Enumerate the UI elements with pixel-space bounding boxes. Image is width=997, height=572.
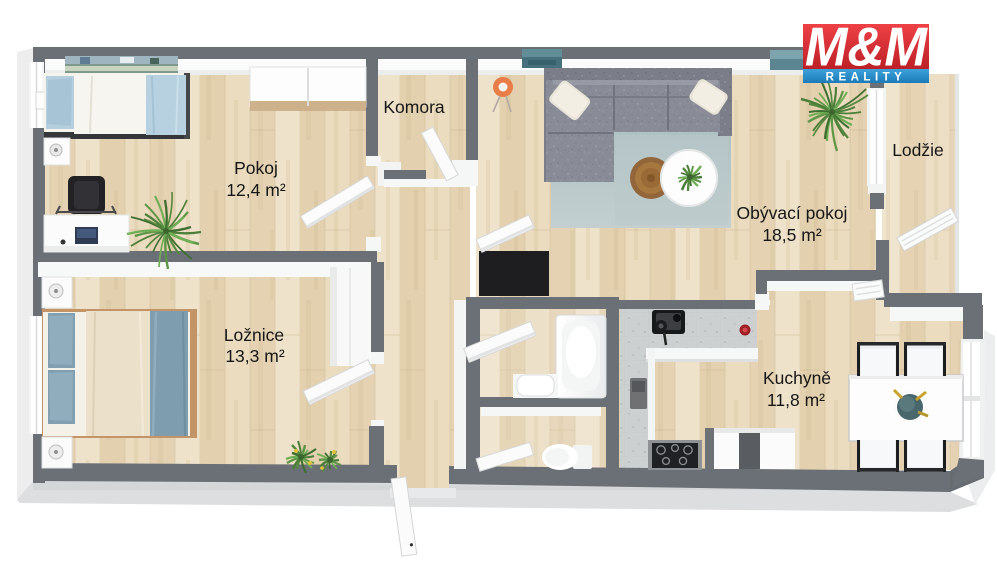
svg-text:Pokoj: Pokoj [234,158,278,178]
svg-text:Kuchyně: Kuchyně [763,368,831,388]
svg-text:Obývací pokoj: Obývací pokoj [737,203,848,223]
svg-text:REALITY: REALITY [826,72,907,84]
svg-text:18,5 m²: 18,5 m² [762,225,821,245]
svg-text:11,8 m²: 11,8 m² [767,390,825,410]
svg-text:Komora: Komora [383,97,445,117]
svg-text:13,3 m²: 13,3 m² [225,346,284,366]
svg-text:12,4 m²: 12,4 m² [226,180,285,200]
svg-text:Lodžie: Lodžie [892,140,944,160]
svg-text:Ložnice: Ložnice [224,325,284,345]
svg-text:M&M: M&M [805,17,929,78]
